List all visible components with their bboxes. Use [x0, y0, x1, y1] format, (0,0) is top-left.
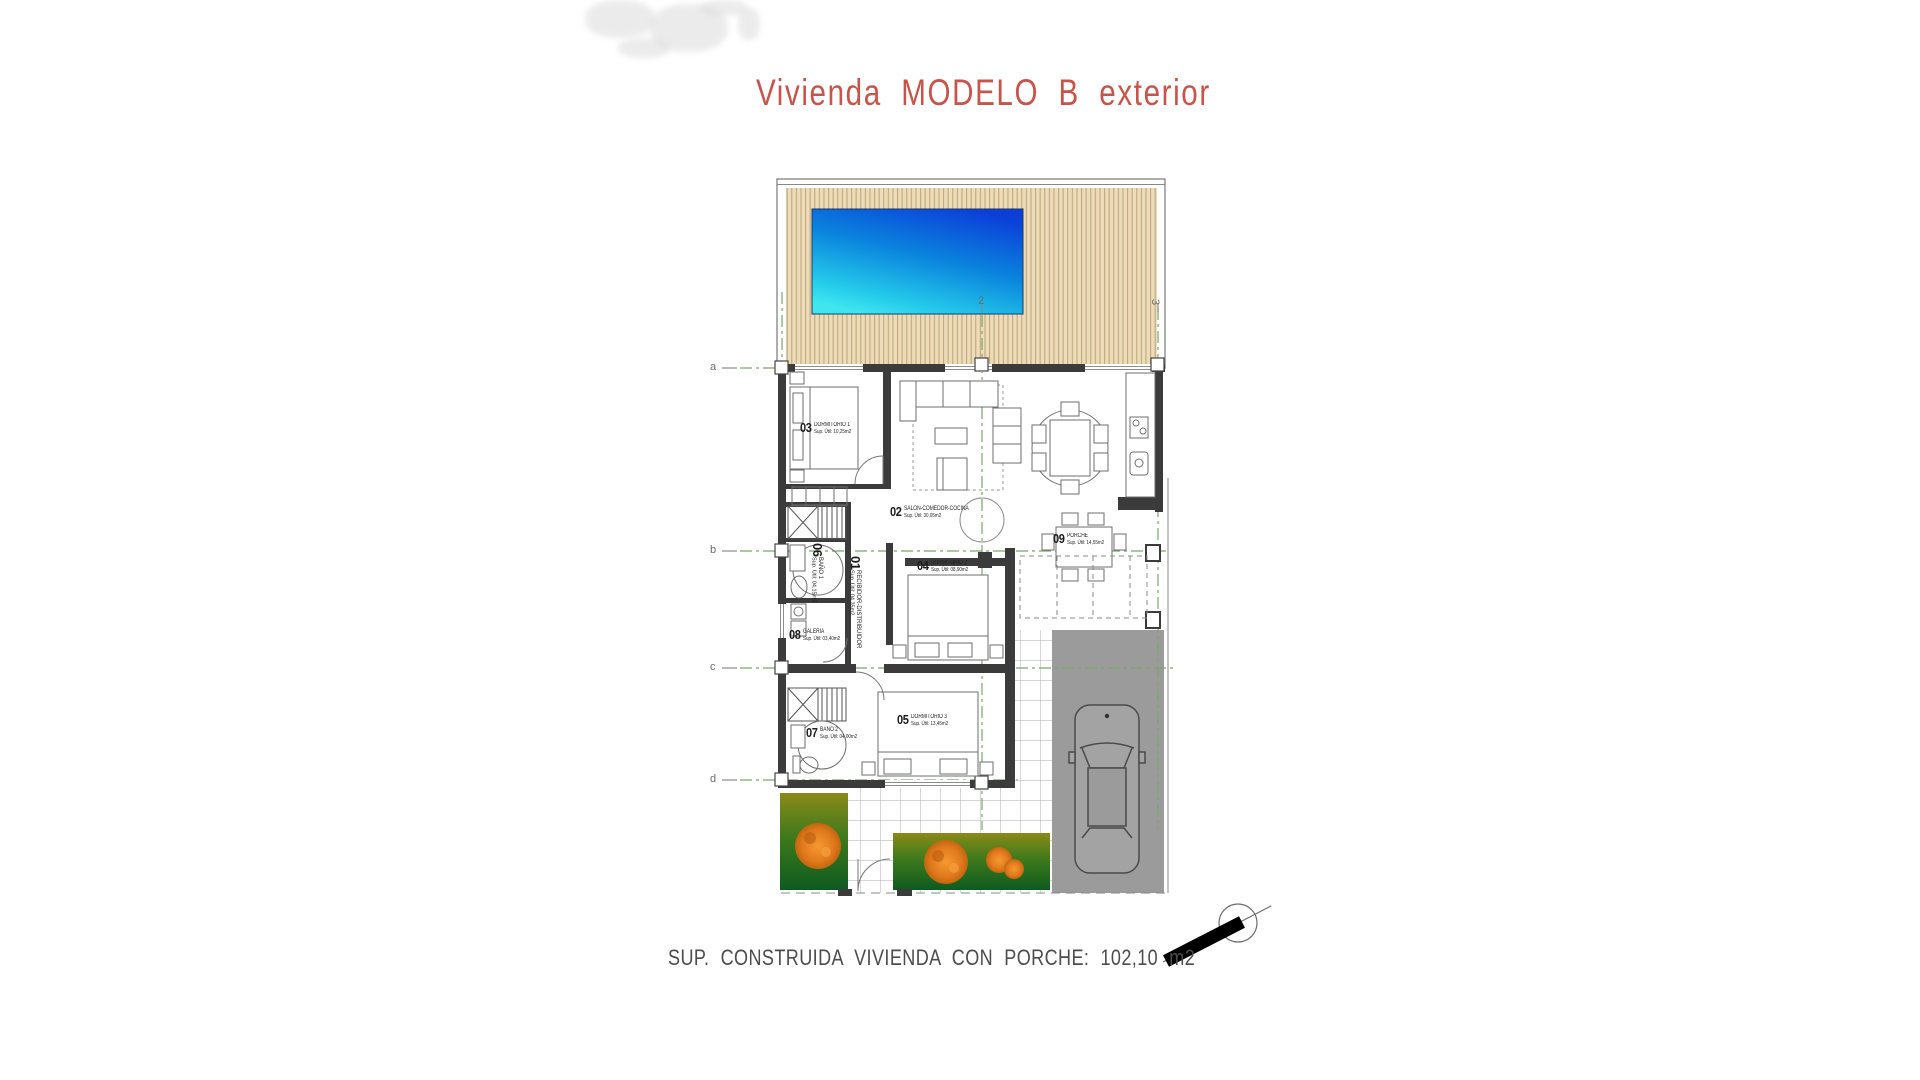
grid-row-label-d: d [710, 773, 716, 785]
grid-col-label-3: 3 [1149, 299, 1161, 305]
room-name: PORCHE [1067, 533, 1104, 540]
room-area: Sup. Útil: 30,05m2 [904, 513, 969, 519]
room-area: Sup. Útil: 14,55m2 [1067, 540, 1104, 546]
grid-row-label-a: a [710, 361, 716, 373]
room-label-dormitorio-2: 04 DORMITORIO 2 Sup. Útil: 08,90m2 [917, 560, 977, 573]
room-name: BAÑO 1 [816, 557, 823, 602]
room-name: GALERÍA [803, 629, 840, 636]
room-name: DORMITORIO 3 [911, 714, 948, 721]
room-number: 05 [897, 714, 908, 726]
car-icon [1069, 705, 1145, 873]
room-label-dormitorio-3: 05 DORMITORIO 3 Sup. Útil: 13,45m2 [897, 714, 957, 727]
room-number: 01 [850, 556, 862, 569]
room-label-dormitorio-1: 03 DORMITORIO 1 Sup. Útil: 10,25m2 [800, 422, 860, 435]
room-area: Sup. Útil: 08,90m2 [931, 567, 968, 573]
porch-columns [1146, 545, 1160, 628]
room-label-bano-2: 07 BAÑO 2 Sup. Útil: 04,00m2 [806, 727, 866, 740]
room-number: 09 [1053, 533, 1064, 545]
room-area: Sup. Útil: 04,35m2 [848, 570, 854, 648]
room-area: Sup. Útil: 04,00m2 [820, 734, 857, 740]
room-name: RECIBIDOR-DISTRIBUIDOR [854, 570, 861, 648]
swimming-pool [812, 209, 1023, 314]
room-number: 08 [789, 629, 800, 641]
room-number: 03 [800, 422, 811, 434]
room-label-recibidor-distribuidor: 01 RECIBIDOR-DISTRIBUIDOR Sup. Útil: 04,… [848, 556, 861, 649]
room-number: 02 [890, 506, 901, 518]
floor-plan-drawing [0, 0, 1920, 1080]
room-number: 07 [806, 727, 817, 739]
room-name: DORMITORIO 2 [931, 560, 968, 567]
room-label-galeria: 08 GALERÍA Sup. Útil: 03,40m2 [789, 629, 849, 642]
grid-row-label-b: b [710, 544, 716, 556]
room-label-bano-1: 06 BAÑO 1 Sup. Útil: 04,15m2 [810, 543, 823, 603]
room-area: Sup. Útil: 04,15m2 [810, 557, 816, 602]
room-label-porche: 09 PORCHE Sup. Útil: 14,55m2 [1053, 533, 1113, 546]
room-area: Sup. Útil: 13,45m2 [911, 721, 948, 727]
room-name: DORMITORIO 1 [814, 422, 851, 429]
room-name: SALÓN-COMEDOR-COCINA [904, 506, 969, 513]
room-area: Sup. Útil: 10,25m2 [814, 429, 851, 435]
room-number: 06 [812, 543, 824, 556]
room-number: 04 [917, 560, 928, 572]
grid-col-label-2: 2 [978, 295, 984, 307]
room-name: BAÑO 2 [820, 727, 857, 734]
built-area-note: SUP. CONSTRUIDA VIVIENDA CON PORCHE: 102… [668, 945, 1195, 971]
room-area: Sup. Útil: 03,40m2 [803, 636, 840, 642]
grid-row-label-c: c [710, 661, 716, 673]
room-label-salon-comedor-cocina: 02 SALÓN-COMEDOR-COCINA Sup. Útil: 30,05… [890, 506, 983, 519]
page-title: Vivienda MODELO B exterior [756, 72, 1211, 114]
